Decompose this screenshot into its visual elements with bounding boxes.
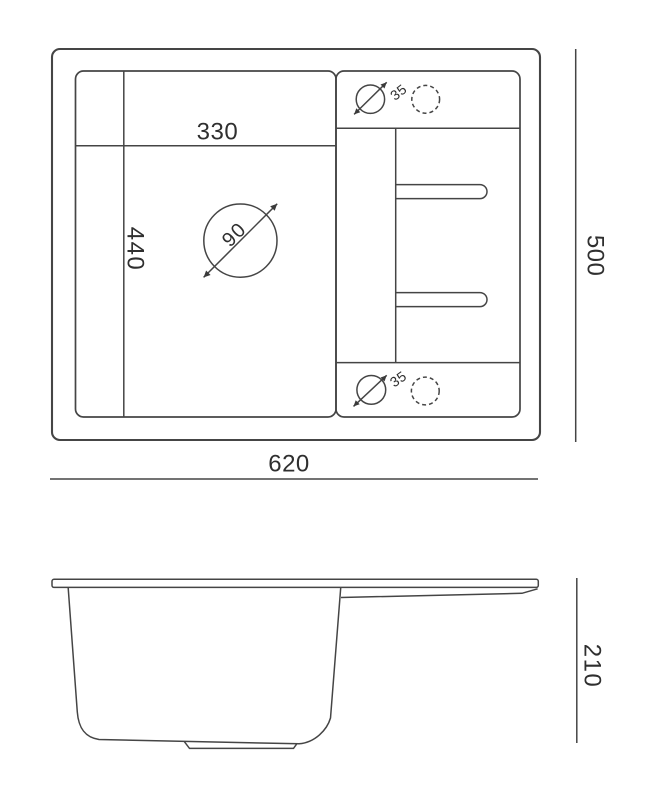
svg-text:210: 210 (579, 644, 606, 689)
svg-text:440: 440 (122, 227, 149, 272)
svg-text:35: 35 (387, 368, 410, 391)
svg-text:90: 90 (218, 218, 251, 251)
svg-text:35: 35 (387, 81, 410, 104)
svg-text:500: 500 (581, 235, 608, 277)
svg-text:330: 330 (197, 118, 239, 145)
svg-text:620: 620 (268, 450, 310, 477)
